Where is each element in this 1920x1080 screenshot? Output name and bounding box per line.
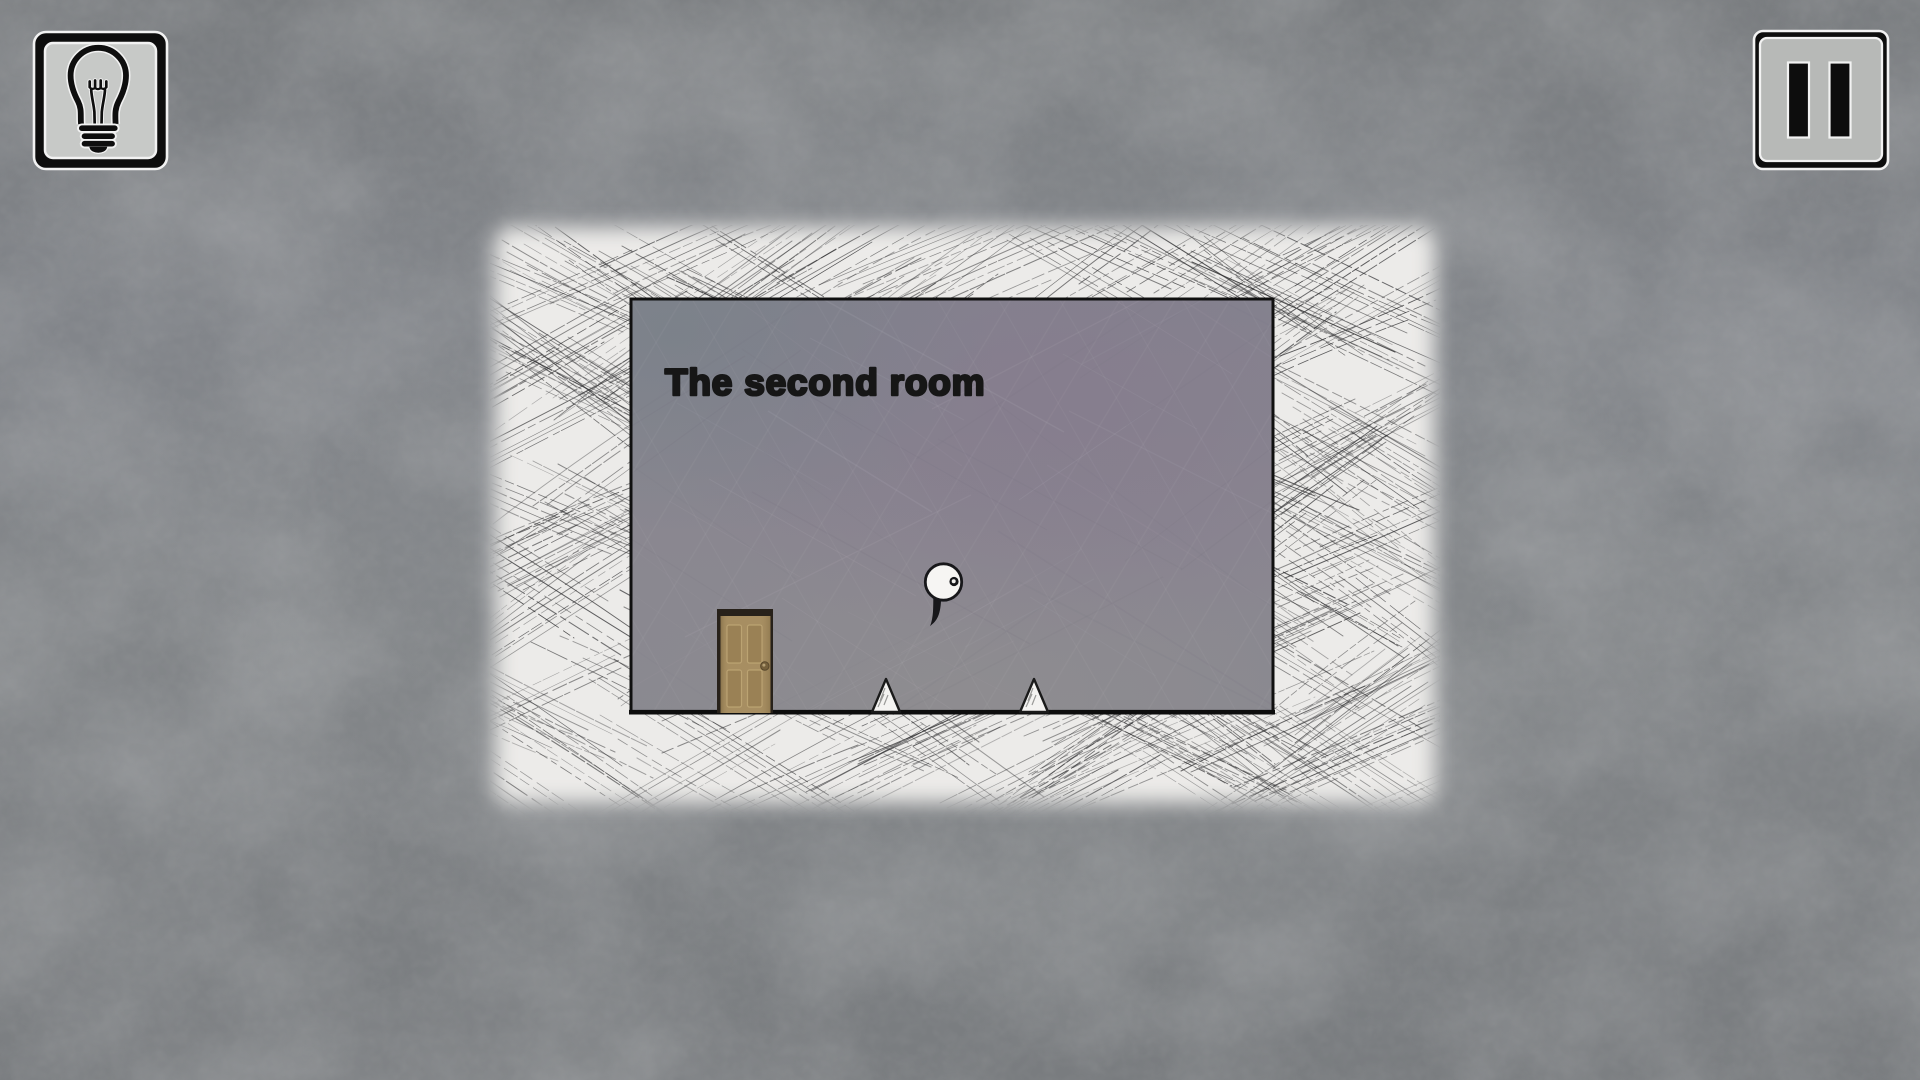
svg-text:The second room: The second room — [665, 362, 985, 403]
